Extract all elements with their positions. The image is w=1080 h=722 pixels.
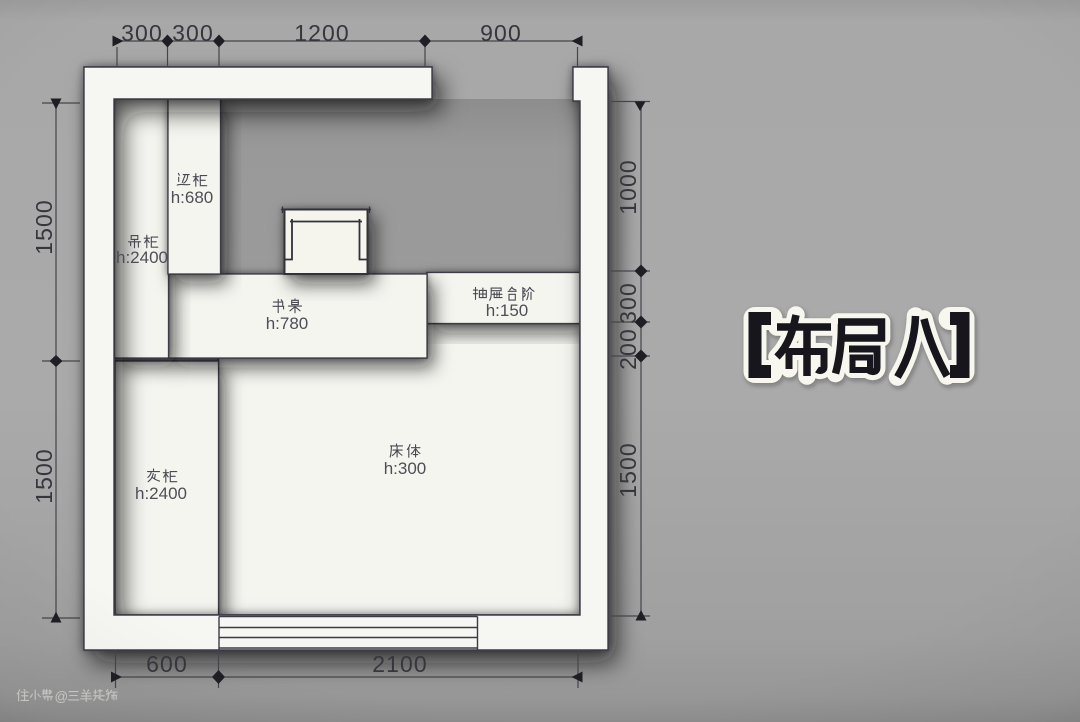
svg-text:@: @ bbox=[55, 689, 69, 704]
